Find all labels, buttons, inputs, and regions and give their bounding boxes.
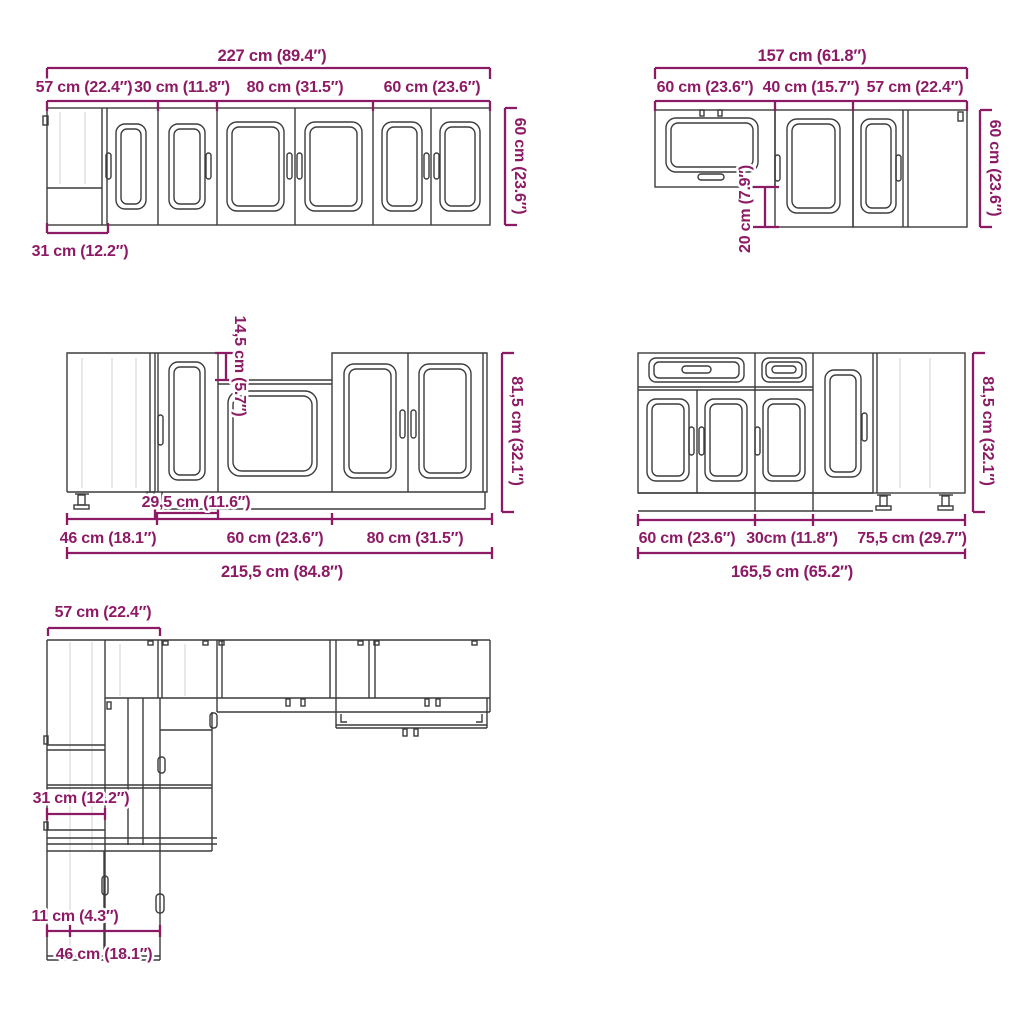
dim-segment-label: 80 cm (31.5″) <box>247 79 344 96</box>
door-handle <box>210 713 217 728</box>
diagram-base-run-right: 81,5 cm (32.1″) 60 cm (23.6″) 30cm (11.8… <box>638 353 996 581</box>
adjustable-leg <box>74 494 89 509</box>
kitchen-cabinet-dimension-drawing: 227 cm (89.4″) 57 cm (22.4″) 30 cm (11.8… <box>0 0 1024 1024</box>
wall-run-left-shading <box>60 112 85 184</box>
dim-height-label: 60 cm (23.6″) <box>986 120 1003 217</box>
dim-recess-label: 14,5 cm (5.7″) <box>231 316 248 417</box>
dim-segment-label: 60 cm (23.6″) <box>639 530 736 547</box>
door-handle <box>689 427 694 455</box>
door-handle <box>206 153 211 179</box>
base-run-left-linework <box>67 353 487 509</box>
dim-plan-left-label: 31 cm (12.2″) <box>33 790 130 807</box>
dim-plan-top-label: 57 cm (22.4″) <box>55 604 152 621</box>
dim-segment-label: 40 cm (15.7″) <box>763 79 860 96</box>
dim-segment-label: 60 cm (23.6″) <box>657 79 754 96</box>
flap-handle <box>698 174 724 180</box>
diagram-wall-run-left: 227 cm (89.4″) 57 cm (22.4″) 30 cm (11.8… <box>32 47 528 260</box>
base-run-right-shading <box>900 358 930 488</box>
door-handle <box>434 153 439 179</box>
drawer-handle <box>682 366 711 373</box>
door-handle <box>755 427 760 455</box>
dim-segment-label: 60 cm (23.6″) <box>384 79 481 96</box>
dim-side-depth-label: 31 cm (12.2″) <box>32 243 129 260</box>
diagram-sheet: 227 cm (89.4″) 57 cm (22.4″) 30 cm (11.8… <box>0 0 1024 1024</box>
wall-run-right-linework <box>655 110 967 227</box>
dim-plan-bottom-label: 46 cm (18.1″) <box>56 946 153 963</box>
diagram-plan-view: 57 cm (22.4″) 31 cm (12.2″) 11 cm (4.3″)… <box>31 604 490 963</box>
door-handle <box>287 153 292 179</box>
dim-plan-small-label: 11 cm (4.3″) <box>31 908 118 925</box>
dim-segment-label: 30 cm (11.8″) <box>134 79 230 96</box>
drawer-handle <box>772 366 796 373</box>
base-run-left-shading <box>82 358 136 488</box>
dim-door-width-label: 29,5 cm (11.6″) <box>142 494 251 511</box>
dim-segment-label: 57 cm (22.4″) <box>36 79 133 96</box>
door-handle <box>158 415 163 445</box>
door-handle <box>699 427 704 455</box>
door-handle <box>158 757 165 773</box>
door-handle <box>424 153 429 179</box>
door-handle <box>775 155 780 181</box>
dim-segment-label: 30cm (11.8″) <box>746 530 838 547</box>
diagram-wall-run-right: 157 cm (61.8″) 60 cm (23.6″) 40 cm (15.7… <box>655 47 1003 253</box>
dim-segment-label: 46 cm (18.1″) <box>60 530 157 547</box>
adjustable-leg <box>876 495 891 510</box>
door-handle <box>862 413 867 441</box>
dim-total-width-label: 165,5 cm (65.2″) <box>731 563 853 581</box>
dim-height-label: 81,5 cm (32.1″) <box>508 376 525 486</box>
dim-segment-label: 57 cm (22.4″) <box>867 79 964 96</box>
dim-total-width-label: 227 cm (89.4″) <box>218 47 327 65</box>
door-handle <box>400 410 405 438</box>
dim-total-width-label: 215,5 cm (84.8″) <box>221 563 343 581</box>
door-handle <box>411 410 416 438</box>
door-handle <box>297 153 302 179</box>
diagram-base-run-left: 14,5 cm (5.7″) 81,5 cm (32.1″) 29,5 cm (… <box>60 316 525 581</box>
dim-segment-label: 75,5 cm (29.7″) <box>857 530 967 547</box>
base-run-right-linework <box>638 353 965 511</box>
dim-height-label: 81,5 cm (32.1″) <box>979 376 996 486</box>
dim-gap-label: 20 cm (7.9″) <box>737 165 754 253</box>
door-handle <box>896 155 901 181</box>
dim-height-label: 60 cm (23.6″) <box>511 118 528 215</box>
base-run-right-dimensions <box>638 353 985 559</box>
dim-segment-label: 80 cm (31.5″) <box>367 530 464 547</box>
adjustable-leg <box>938 495 953 510</box>
wall-run-left-linework <box>43 108 490 225</box>
dim-segment-label: 60 cm (23.6″) <box>227 530 324 547</box>
dim-total-width-label: 157 cm (61.8″) <box>758 47 867 65</box>
